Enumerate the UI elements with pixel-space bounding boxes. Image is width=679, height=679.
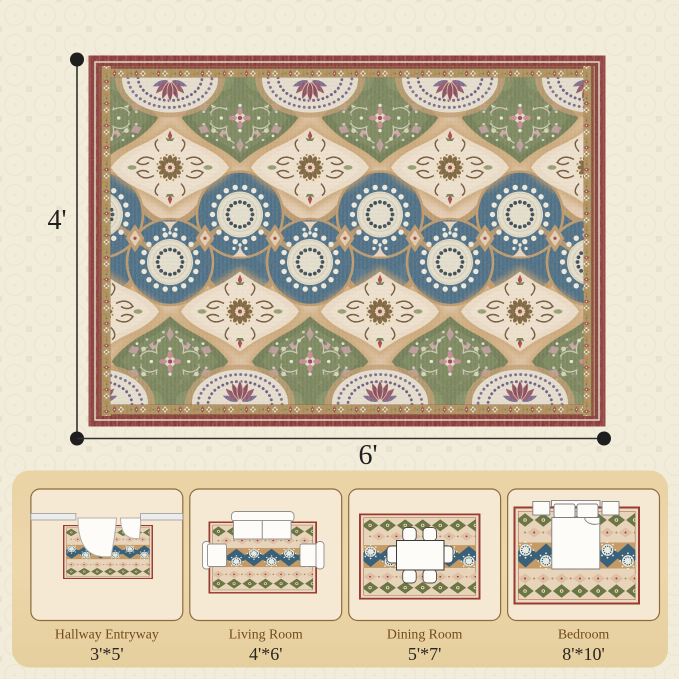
- svg-text:5'*7': 5'*7': [408, 644, 442, 664]
- svg-text:8'*10': 8'*10': [562, 644, 605, 664]
- svg-text:6': 6': [358, 440, 377, 471]
- svg-text:Living Room: Living Room: [229, 627, 303, 642]
- svg-text:4'*6': 4'*6': [249, 644, 283, 664]
- svg-text:4': 4': [47, 205, 66, 236]
- svg-text:Dining Room: Dining Room: [387, 627, 463, 642]
- svg-text:Bedroom: Bedroom: [558, 627, 610, 642]
- svg-text:Hallway Entryway: Hallway Entryway: [55, 627, 159, 642]
- svg-text:3'*5': 3'*5': [90, 644, 124, 664]
